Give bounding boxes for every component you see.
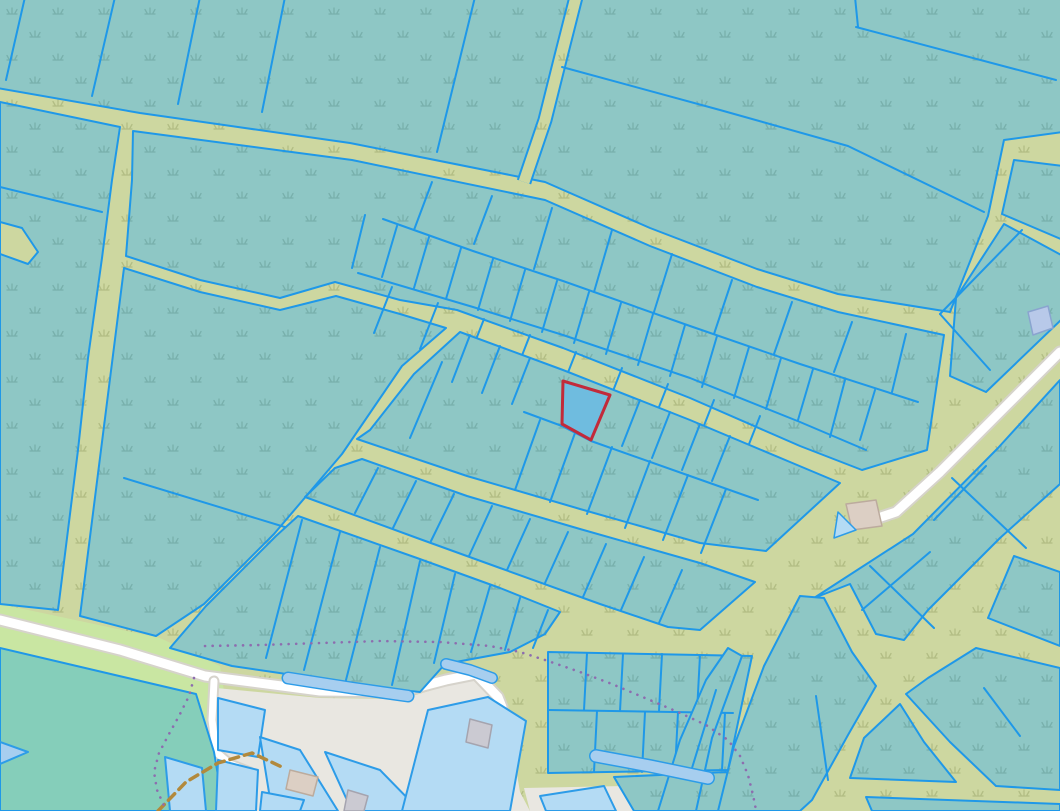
map-canvas[interactable] <box>0 0 1060 811</box>
building-gray-b <box>466 719 492 748</box>
map-viewport <box>0 0 1060 811</box>
built-parcel-b <box>216 760 258 811</box>
